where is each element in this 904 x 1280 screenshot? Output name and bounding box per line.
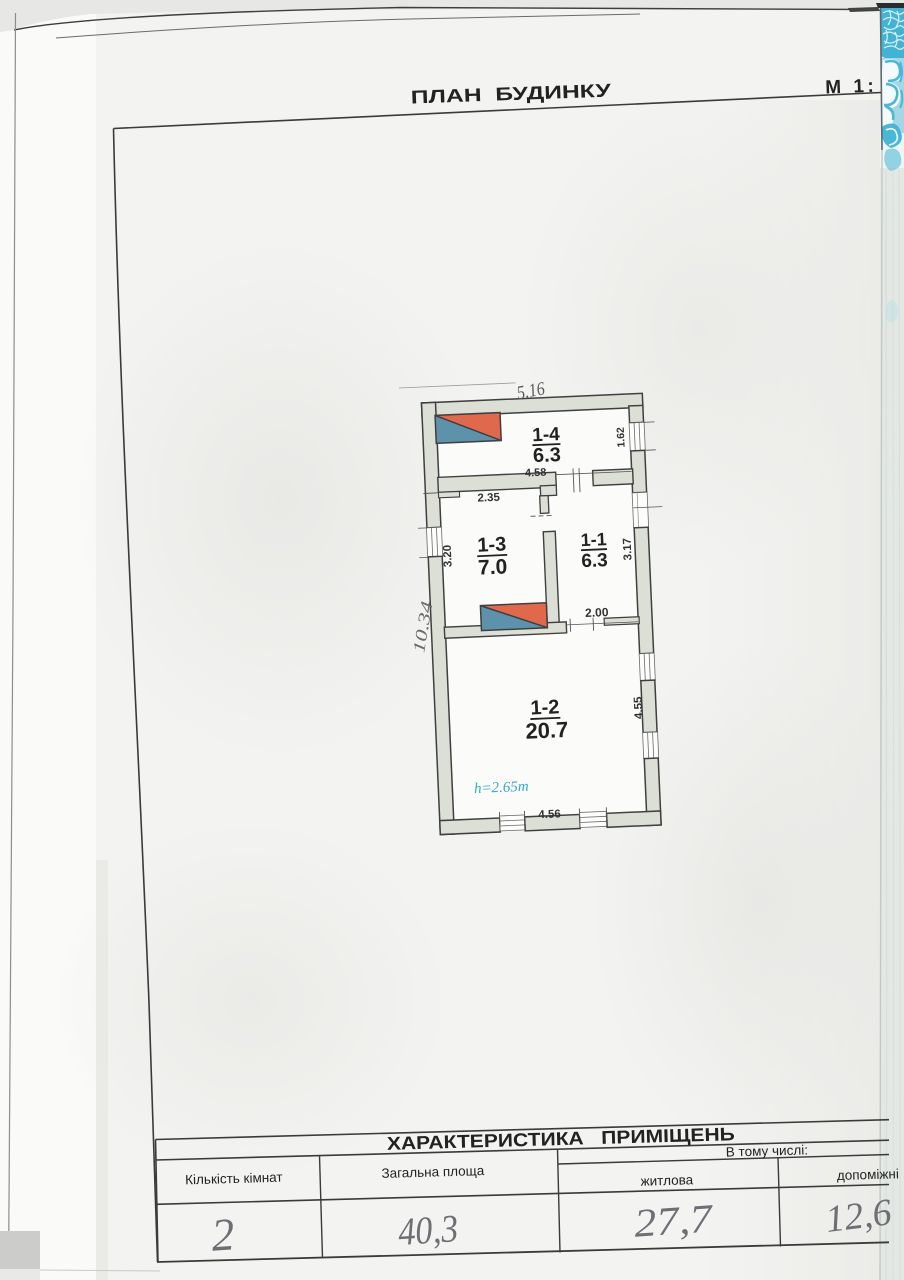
svg-text:Загальна площа: Загальна площа: [381, 1163, 485, 1181]
svg-text:3.17: 3.17: [622, 538, 635, 561]
svg-text:40,3: 40,3: [397, 1207, 460, 1254]
svg-text:1.62: 1.62: [615, 427, 628, 448]
svg-text:житлова: житлова: [640, 1172, 693, 1188]
svg-text:3.20: 3.20: [442, 545, 455, 568]
svg-text:4.56: 4.56: [538, 808, 561, 821]
svg-text:6.3: 6.3: [581, 550, 608, 572]
svg-text:1-4: 1-4: [532, 424, 561, 446]
svg-text:В тому числі:: В тому числі:: [726, 1142, 809, 1159]
svg-text:допоміжні: допоміжні: [837, 1166, 899, 1183]
svg-text:27,7: 27,7: [633, 1195, 716, 1245]
svg-text:1-1: 1-1: [580, 529, 607, 550]
svg-text:1-2: 1-2: [530, 696, 560, 719]
svg-text:6.3: 6.3: [533, 444, 562, 467]
svg-text:12,6: 12,6: [823, 1191, 894, 1241]
svg-text:20.7: 20.7: [525, 717, 569, 744]
svg-text:2.35: 2.35: [477, 492, 500, 505]
svg-text:2: 2: [210, 1208, 237, 1260]
svg-text:Кількість кімнат: Кількість кімнат: [185, 1170, 283, 1188]
svg-text:1-3: 1-3: [477, 533, 507, 556]
svg-text:h=2.65m: h=2.65m: [474, 779, 530, 797]
svg-text:2.00: 2.00: [585, 605, 609, 620]
svg-text:4.55: 4.55: [632, 696, 645, 719]
svg-text:4.58: 4.58: [525, 467, 547, 480]
svg-text:7.0: 7.0: [478, 555, 508, 579]
